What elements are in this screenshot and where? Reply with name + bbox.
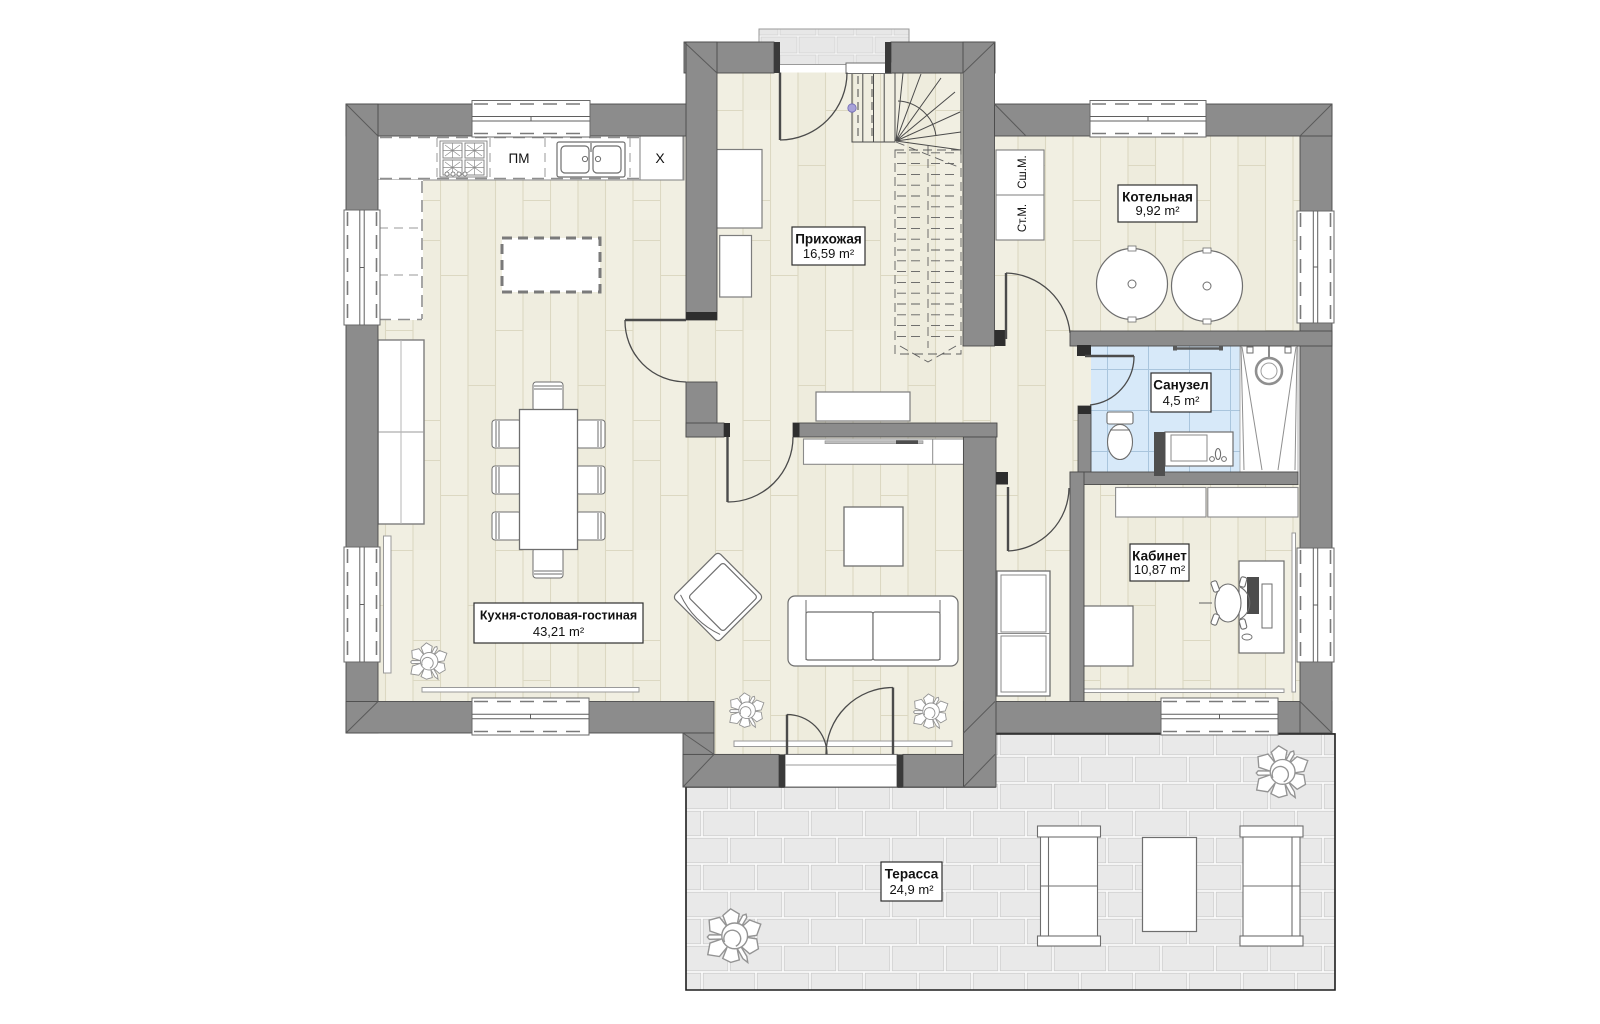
svg-text:Терасса: Терасса [885, 867, 939, 882]
svg-text:Прихожая: Прихожая [795, 232, 862, 247]
svg-text:Ст.М.: Ст.М. [1017, 204, 1029, 232]
svg-text:X: X [655, 150, 665, 166]
svg-text:43,21 m²: 43,21 m² [533, 624, 585, 639]
svg-text:9,92 m²: 9,92 m² [1135, 203, 1180, 218]
svg-text:Сш.М.: Сш.М. [1017, 155, 1029, 189]
svg-text:24,9 m²: 24,9 m² [889, 882, 934, 897]
svg-text:ПМ: ПМ [509, 151, 530, 166]
svg-text:Санузел: Санузел [1153, 378, 1209, 393]
svg-text:Кухня-столовая-гостиная: Кухня-столовая-гостиная [480, 609, 637, 623]
svg-text:16,59 m²: 16,59 m² [803, 246, 855, 261]
svg-text:4,5 m²: 4,5 m² [1163, 393, 1201, 408]
svg-text:10,87 m²: 10,87 m² [1134, 562, 1186, 577]
